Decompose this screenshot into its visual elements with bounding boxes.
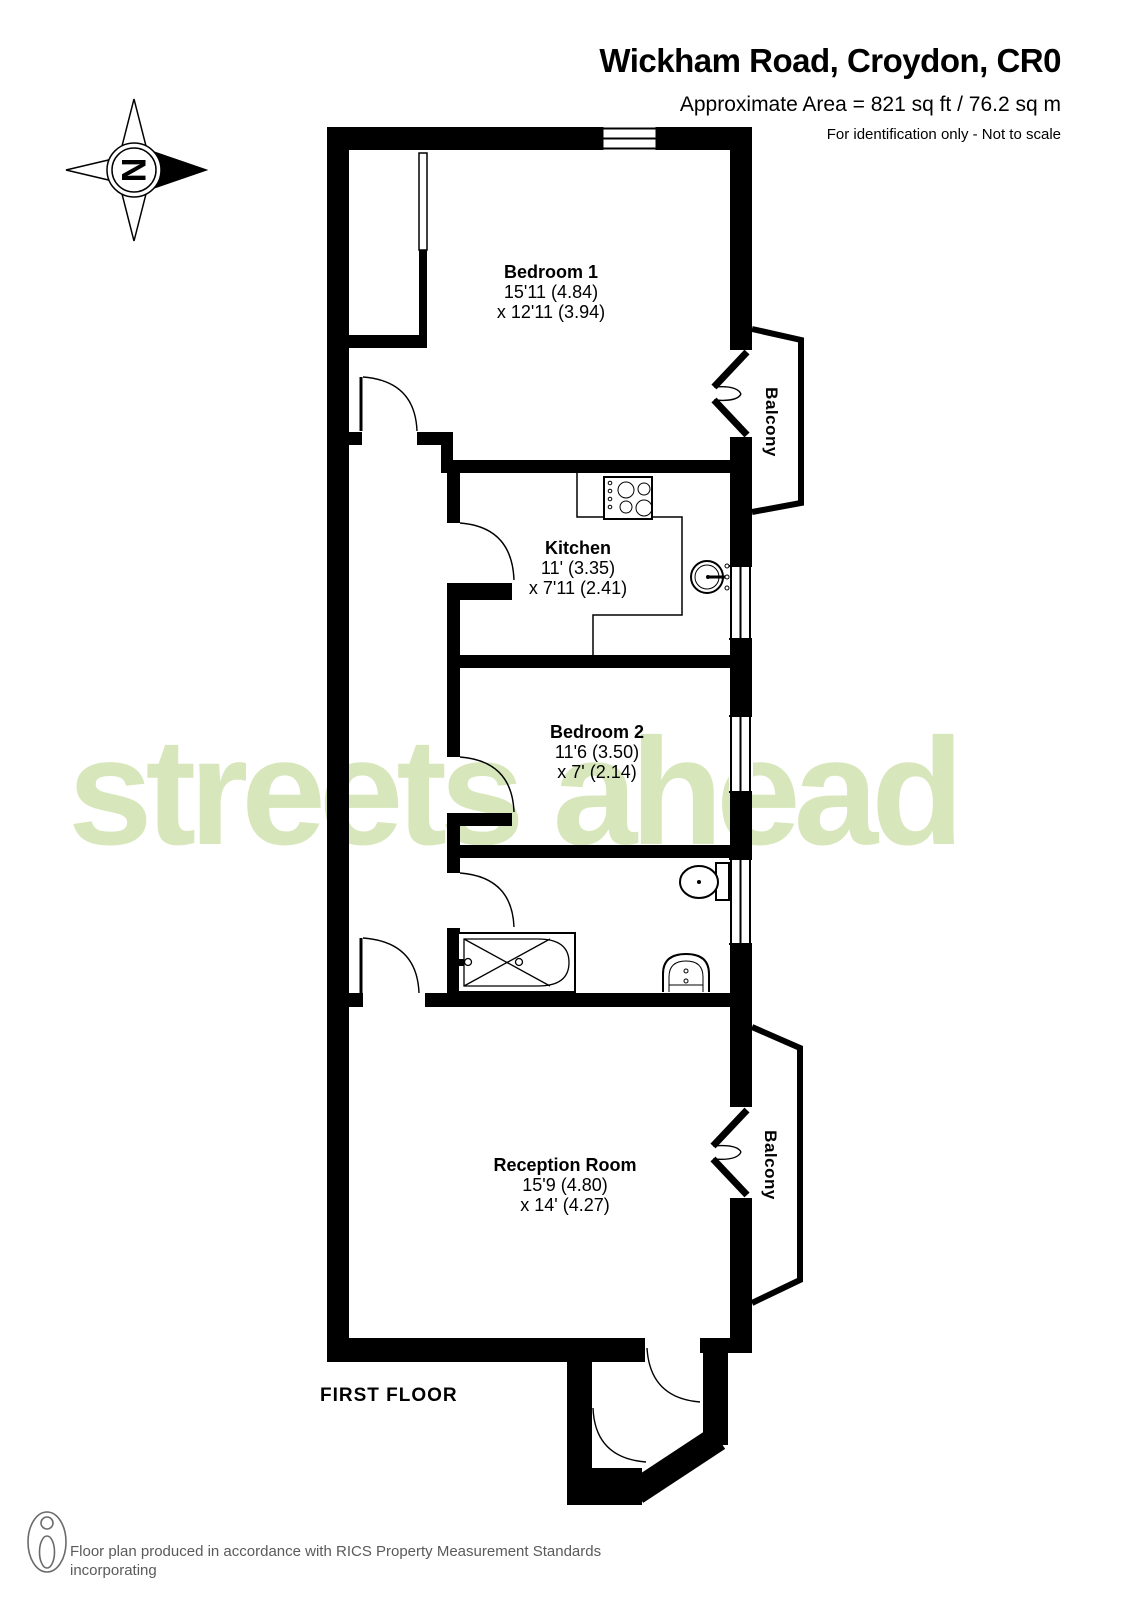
balcony-top-label: Balcony (761, 387, 781, 457)
area-line: Approximate Area = 821 sq ft / 76.2 sq m (599, 93, 1061, 117)
room-dim-2: x 7' (2.14) (550, 762, 644, 782)
room-dim-1: 15'9 (4.80) (493, 1175, 636, 1195)
room-dim-1: 15'11 (4.84) (497, 282, 605, 302)
room-label-reception: Reception Room 15'9 (4.80) x 14' (4.27) (493, 1155, 636, 1215)
room-label-kitchen: Kitchen 11' (3.35) x 7'11 (2.41) (529, 538, 627, 598)
plan-header: Wickham Road, Croydon, CR0 Approximate A… (599, 42, 1061, 143)
room-name: Kitchen (529, 538, 627, 558)
page-title: Wickham Road, Croydon, CR0 (599, 42, 1061, 80)
room-label-bedroom-2: Bedroom 2 11'6 (3.50) x 7' (2.14) (550, 722, 644, 782)
balcony-bottom-label: Balcony (760, 1130, 780, 1200)
footer-text: Floor plan produced in accordance with R… (70, 1506, 690, 1599)
floor-label: FIRST FLOOR (320, 1385, 458, 1407)
room-dim-2: x 14' (4.27) (493, 1195, 636, 1215)
room-label-bedroom-1: Bedroom 1 15'11 (4.84) x 12'11 (3.94) (497, 262, 605, 322)
room-dim-2: x 12'11 (3.94) (497, 302, 605, 322)
footer-line-1: Floor plan produced in accordance with R… (70, 1543, 690, 1580)
floorplan-page: streets ahead (0, 0, 1131, 1599)
room-name: Bedroom 1 (497, 262, 605, 282)
room-dim-1: 11' (3.35) (529, 558, 627, 578)
room-name: Bedroom 2 (550, 722, 644, 742)
room-dim-1: 11'6 (3.50) (550, 742, 644, 762)
room-dim-2: x 7'11 (2.41) (529, 578, 627, 598)
disclaimer: For identification only - Not to scale (599, 126, 1061, 143)
room-name: Reception Room (493, 1155, 636, 1175)
labels-layer: Wickham Road, Croydon, CR0 Approximate A… (0, 0, 1131, 1599)
